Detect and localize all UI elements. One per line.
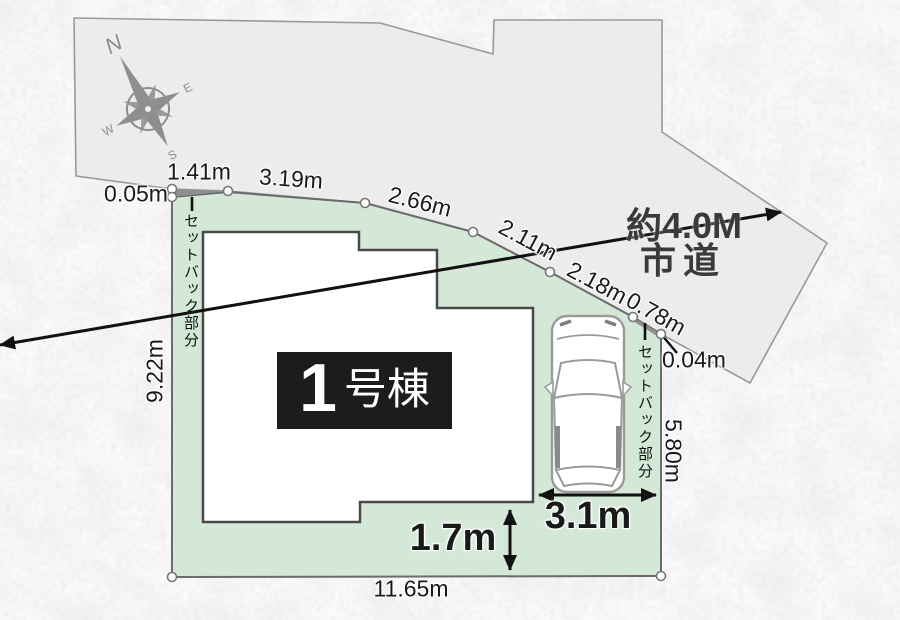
- measure-gap-left: 0.05m: [104, 183, 168, 206]
- building-number: 1: [299, 358, 337, 419]
- car-icon: [545, 316, 631, 492]
- parking-width-label: 3.1m: [545, 497, 632, 535]
- setback-label-left: セットバック部分: [183, 213, 198, 349]
- measure-seg-1-41: 1.41m: [167, 161, 231, 184]
- building-suffix: 号棟: [344, 369, 430, 412]
- site-plan-diagram: N E S W 0.05m 1.41m 3.19m 2.66m 2.11m 2.…: [0, 0, 900, 620]
- measure-east-edge: 5.80m: [662, 419, 685, 483]
- measure-west-edge: 9.22m: [144, 339, 167, 403]
- building-label: 1 号棟: [277, 352, 452, 429]
- road-type-label: 市道: [640, 243, 726, 279]
- measure-seg-3-19: 3.19m: [258, 165, 323, 192]
- measure-gap-right: 0.04m: [662, 349, 726, 372]
- setback-label-right: セットバック部分: [637, 344, 652, 480]
- parking-depth-label: 1.7m: [410, 519, 497, 557]
- measure-south-edge: 11.65m: [373, 578, 448, 601]
- road-width-label: 約4.0M: [626, 208, 742, 244]
